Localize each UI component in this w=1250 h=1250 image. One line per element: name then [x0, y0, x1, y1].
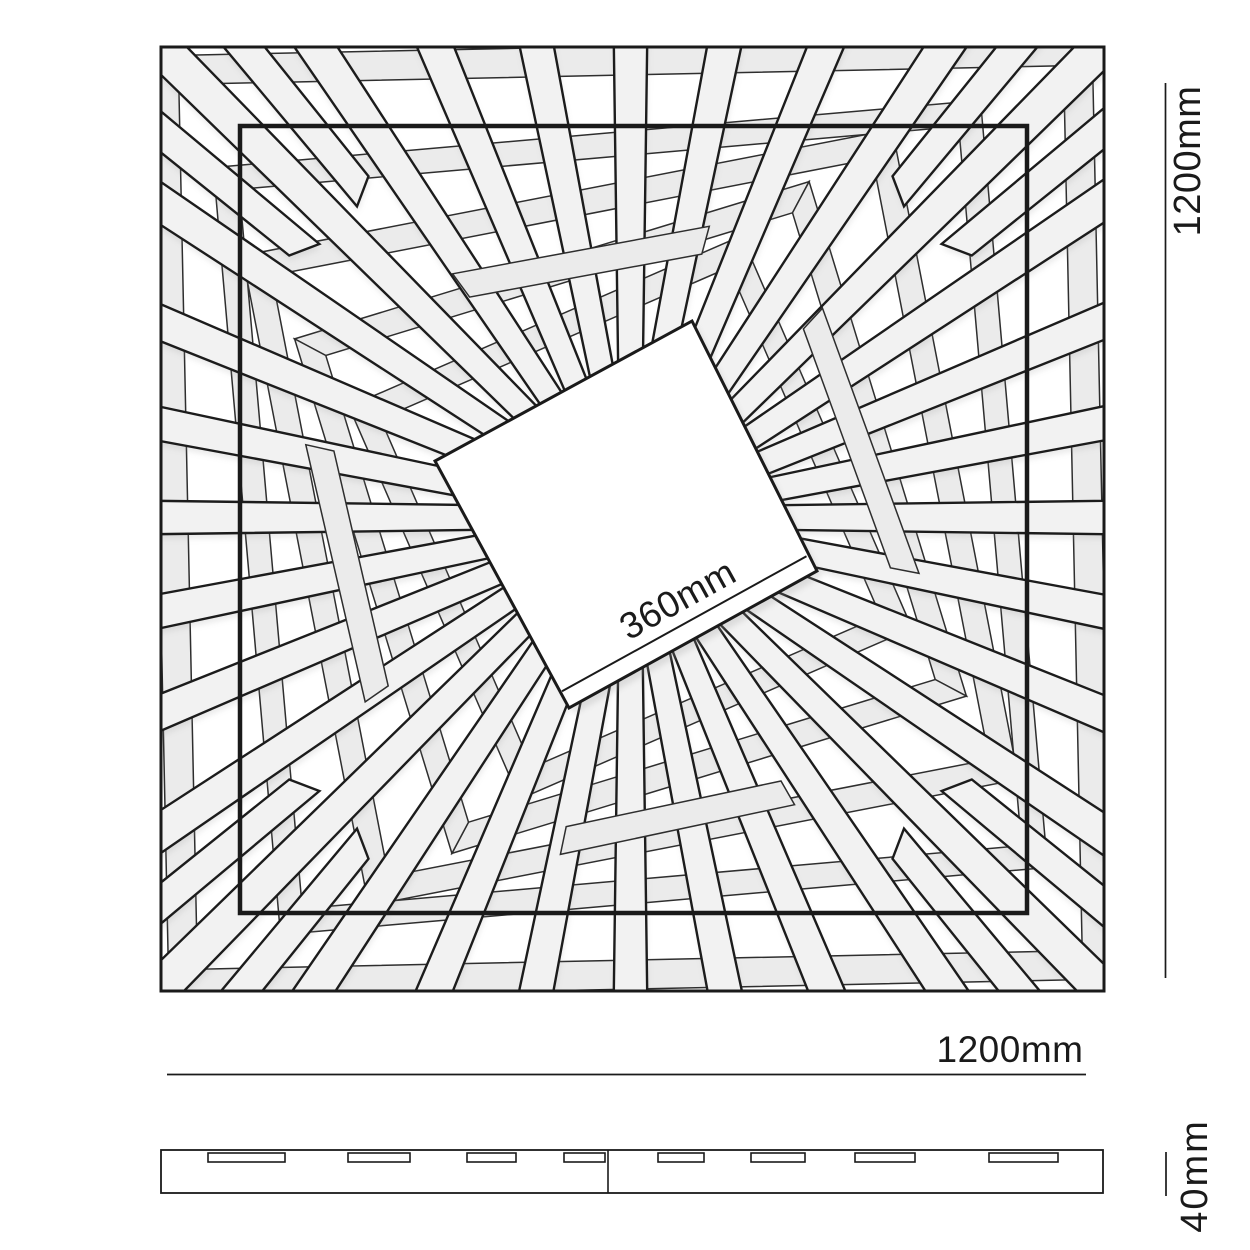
svg-text:1200mm: 1200mm	[937, 1029, 1084, 1070]
svg-text:1200mm: 1200mm	[1167, 86, 1209, 237]
svg-text:40mm: 40mm	[1174, 1119, 1216, 1233]
